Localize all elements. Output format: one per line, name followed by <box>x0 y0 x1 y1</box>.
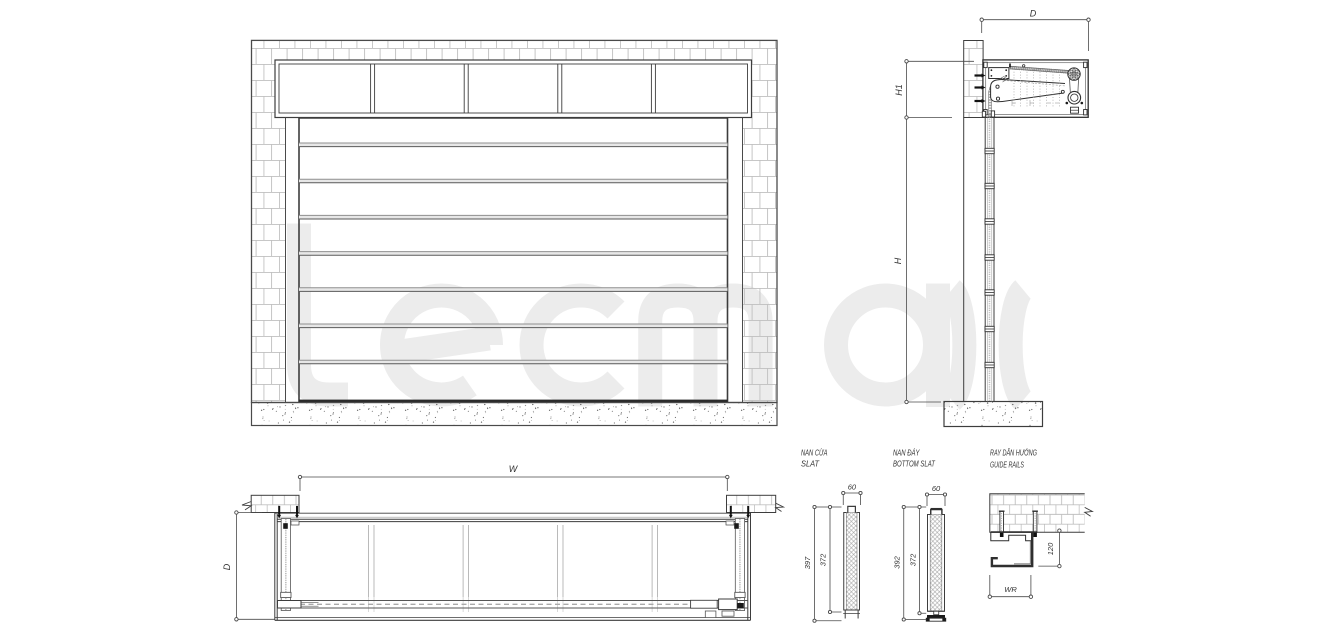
svg-text:BOTTOM SLAT: BOTTOM SLAT <box>893 460 936 469</box>
svg-text:D: D <box>1030 9 1037 19</box>
svg-text:120: 120 <box>1046 542 1055 555</box>
svg-text:NAN ĐÁY: NAN ĐÁY <box>893 449 920 458</box>
svg-text:60: 60 <box>932 484 941 493</box>
svg-text:392: 392 <box>893 555 902 568</box>
svg-text:H: H <box>893 257 903 264</box>
svg-text:WR: WR <box>1004 585 1017 594</box>
svg-text:GUIDE RAILS: GUIDE RAILS <box>990 461 1024 470</box>
svg-text:NAN CỪA: NAN CỪA <box>801 449 828 458</box>
svg-text:H1: H1 <box>894 84 904 96</box>
svg-text:60: 60 <box>848 483 857 492</box>
svg-text:372: 372 <box>819 553 828 566</box>
svg-text:372: 372 <box>909 553 918 566</box>
svg-text:SLAT: SLAT <box>801 460 820 469</box>
svg-text:397: 397 <box>803 556 812 569</box>
svg-text:D: D <box>222 563 232 570</box>
svg-text:RAY DẪN HƯỚNG: RAY DẪN HƯỚNG <box>990 449 1037 458</box>
